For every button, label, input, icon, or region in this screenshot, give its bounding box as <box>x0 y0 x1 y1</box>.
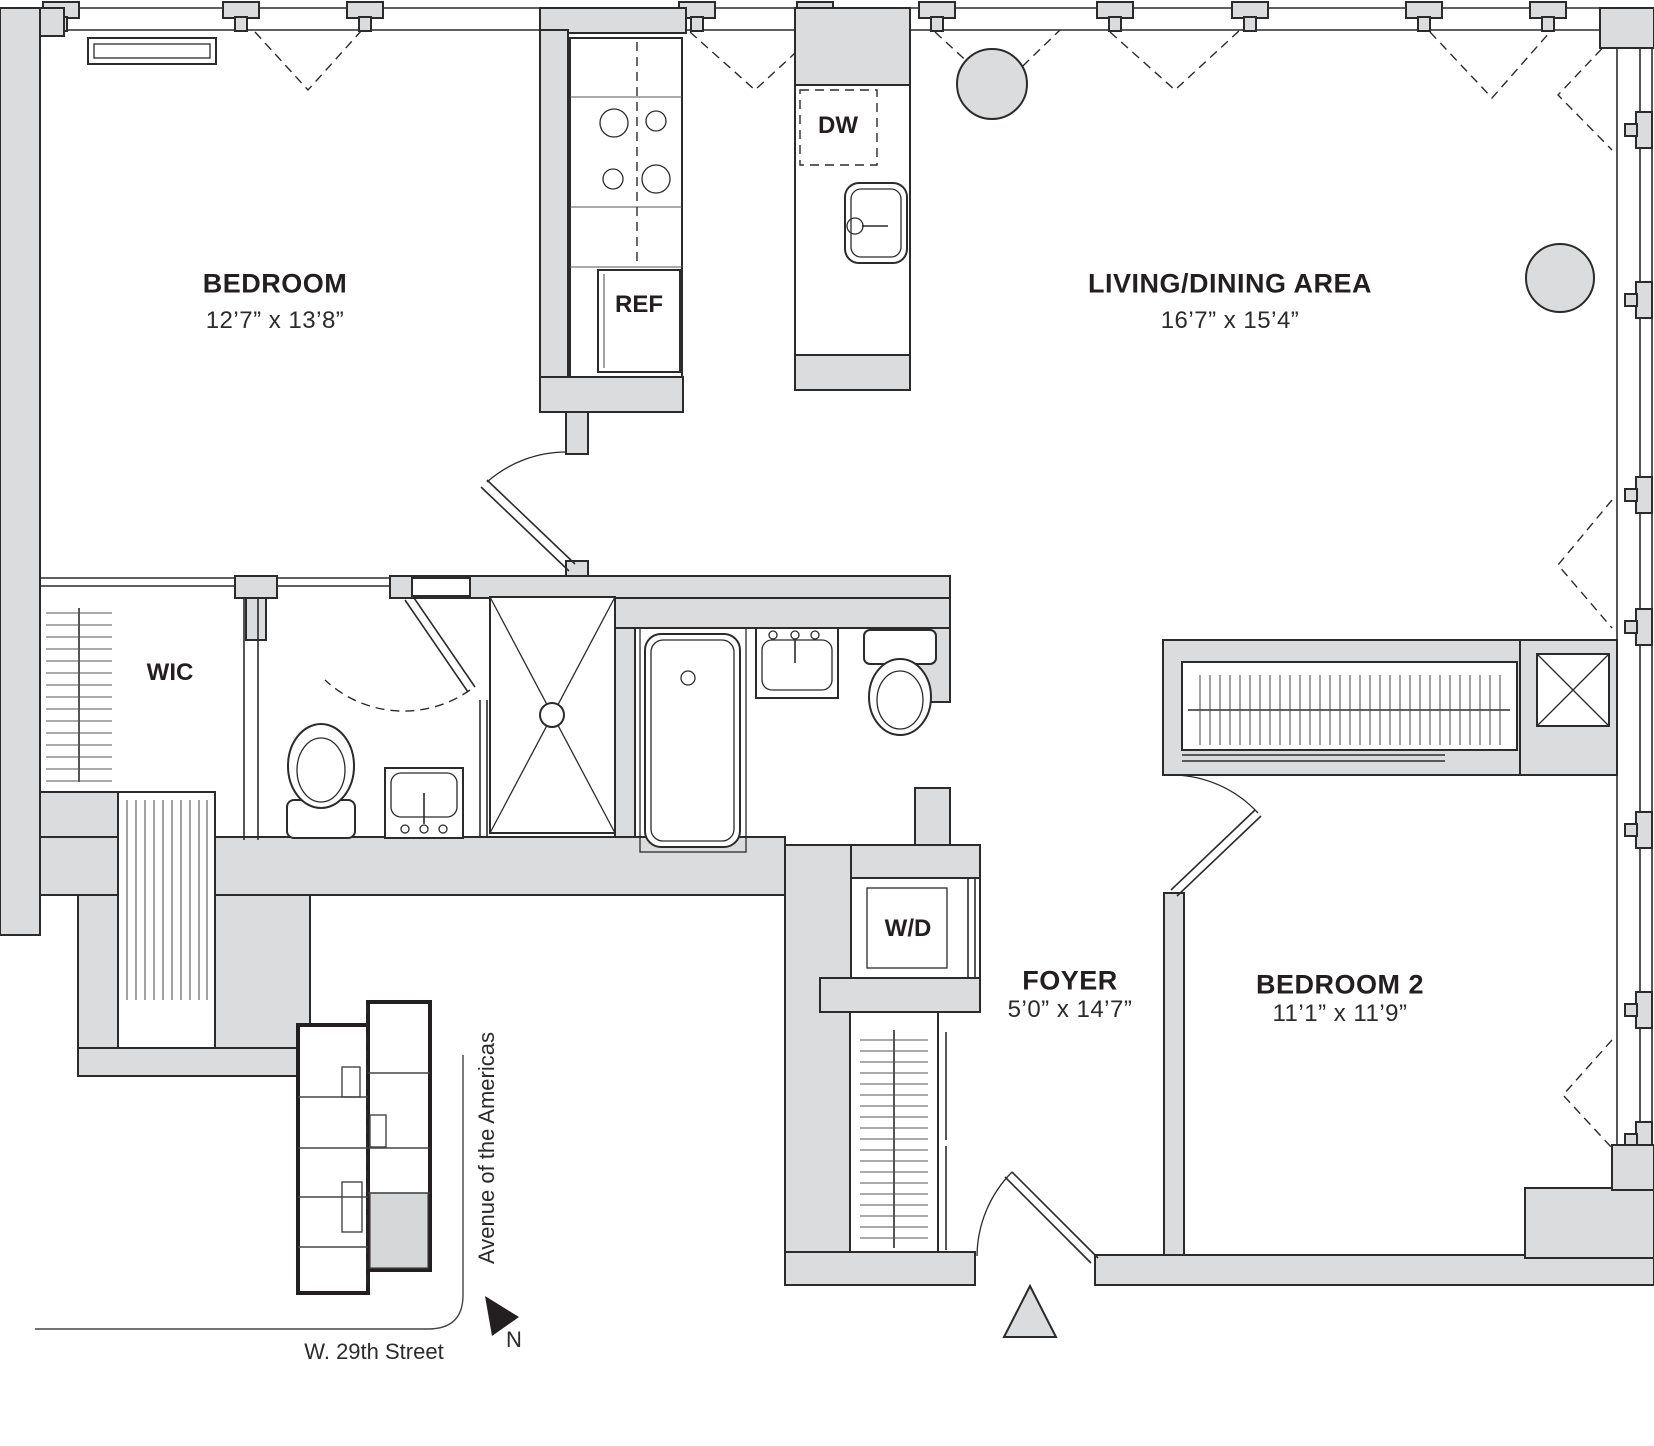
avenue-street-label: Avenue of the Americas <box>474 1032 500 1264</box>
bedroom2-dims: 11’1” x 11’9” <box>1272 1000 1407 1028</box>
bedroom-dims: 12’7” x 13’8” <box>206 307 345 335</box>
shaft-icon <box>1537 654 1609 726</box>
floor-plan-page: BEDROOM 12’7” x 13’8” LIVING/DINING AREA… <box>0 0 1654 1446</box>
window-mullion-icon <box>1625 112 1652 1158</box>
living-dining-dims: 16’7” x 15’4” <box>1161 307 1300 335</box>
foyer-dims: 5’0” x 14’7” <box>1008 996 1133 1024</box>
bathtub-icon <box>640 628 746 852</box>
bathroom-sink-icon <box>385 768 463 838</box>
washer-dryer-label: W/D <box>885 915 932 943</box>
bathroom1-door-swing <box>325 595 475 711</box>
bathroom-sink-icon <box>756 628 838 698</box>
bedroom-hvac-unit <box>88 38 216 64</box>
kitchen-sink-icon <box>845 183 907 263</box>
foyer-label: FOYER <box>1022 966 1118 997</box>
dishwasher-label: DW <box>818 112 858 140</box>
bedroom2-door-swing <box>1171 775 1261 896</box>
north-label: N <box>506 1327 522 1353</box>
entry-marker-icon <box>1004 1286 1056 1337</box>
bedroom2-closet-rod-icon <box>1182 662 1517 761</box>
refrigerator <box>598 270 680 372</box>
window-wall-right <box>1617 8 1652 1150</box>
bedroom-door-swing <box>481 452 575 571</box>
toilet-icon <box>287 724 355 838</box>
bedroom-label: BEDROOM <box>203 269 348 300</box>
street-label: W. 29th Street <box>304 1339 443 1365</box>
foyer-closet-rod-icon <box>850 1012 946 1252</box>
living-dining-label: LIVING/DINING AREA <box>1088 269 1372 300</box>
bedroom2-label: BEDROOM 2 <box>1256 970 1424 1001</box>
key-plan-unit-highlight <box>370 1193 428 1268</box>
floor-plan-svg <box>0 0 1654 1446</box>
wic-alcove-closet-icon <box>118 792 215 1048</box>
shower-icon <box>480 597 615 838</box>
wic-closet-rod-icon <box>46 608 112 782</box>
toilet-icon <box>864 630 936 735</box>
entry-door-swing <box>977 1172 1098 1263</box>
refrigerator-label: REF <box>615 291 663 319</box>
wic-label: WIC <box>147 659 194 687</box>
